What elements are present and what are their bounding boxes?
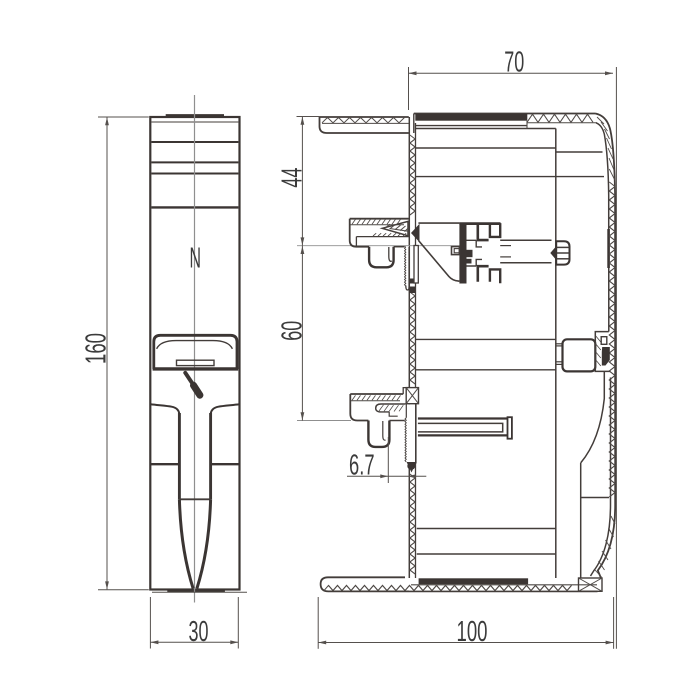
svg-text:160: 160 [80, 333, 112, 364]
svg-text:100: 100 [457, 616, 488, 648]
svg-text:44: 44 [277, 168, 309, 188]
svg-text:60: 60 [277, 321, 309, 341]
svg-text:N: N [190, 243, 202, 275]
svg-text:30: 30 [189, 616, 209, 648]
